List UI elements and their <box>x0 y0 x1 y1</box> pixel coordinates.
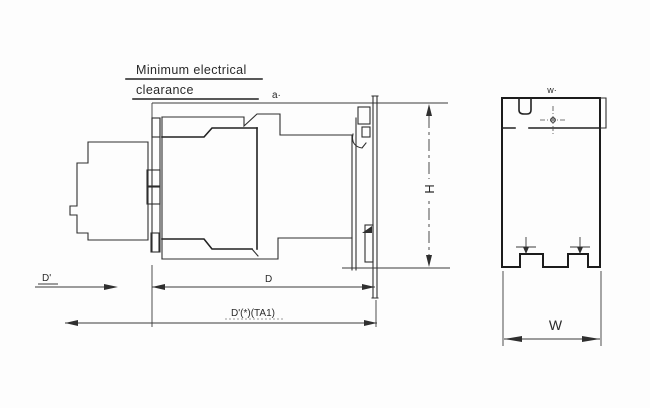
front-view-outline <box>502 98 600 267</box>
clearance-note-line1: Minimum electrical <box>136 63 247 77</box>
notch-markers <box>516 237 590 254</box>
inner-body-bottom <box>162 239 252 249</box>
h-arrow-down <box>426 255 432 267</box>
d-front-arrow <box>104 284 118 290</box>
side-view <box>70 96 378 298</box>
front-view: w· <box>502 85 606 267</box>
center-mark <box>540 106 566 134</box>
rail-clip-upper <box>358 107 370 124</box>
d-total-arrow-right <box>364 320 377 326</box>
d-total-label: D'(*)(TA1) <box>231 308 275 319</box>
rail-release-slot <box>519 98 531 114</box>
strip-tab-mid-lower <box>147 187 160 204</box>
notch-marker-left-arrow <box>523 247 529 254</box>
clearance-note: Minimum electrical clearance <box>126 63 262 99</box>
notch-marker-right-arrow <box>577 247 583 254</box>
strip-tab-mid-upper <box>147 170 160 186</box>
strip-tab-top <box>152 118 160 137</box>
dimension-drawing: Minimum electrical clearance a· <box>0 0 650 408</box>
w-arrow-left <box>504 336 522 342</box>
inner-body-top <box>162 128 257 137</box>
d-front-label: D' <box>42 273 51 284</box>
dimension-D-front: D' <box>35 273 118 290</box>
w-dimension-label: W <box>549 317 563 333</box>
rail-clip-spring <box>362 226 372 233</box>
h-arrow-up <box>426 104 432 116</box>
technical-drawing-page: Minimum electrical clearance a· <box>0 0 650 408</box>
rail-clip-hook <box>352 134 366 148</box>
inner-body-corner-step <box>252 249 258 256</box>
front-block-outline <box>70 142 148 240</box>
h-dimension-label: H <box>422 184 437 193</box>
rail-clip-latch <box>362 127 370 137</box>
d-arrow-left <box>152 284 165 290</box>
clearance-note-line2: clearance <box>136 83 194 97</box>
dimension-H: H <box>342 104 450 268</box>
dimension-D-total: D'(*)(TA1) <box>65 300 377 327</box>
dimension-W: W <box>503 271 601 346</box>
d-dimension-label: D <box>265 274 272 285</box>
d-total-arrow-left <box>65 320 78 326</box>
w-arrow-right <box>582 336 600 342</box>
front-strip <box>152 118 160 252</box>
w-top-label: w· <box>546 85 557 95</box>
dimension-a: a· <box>152 90 448 118</box>
a-dimension-label: a· <box>272 90 281 101</box>
